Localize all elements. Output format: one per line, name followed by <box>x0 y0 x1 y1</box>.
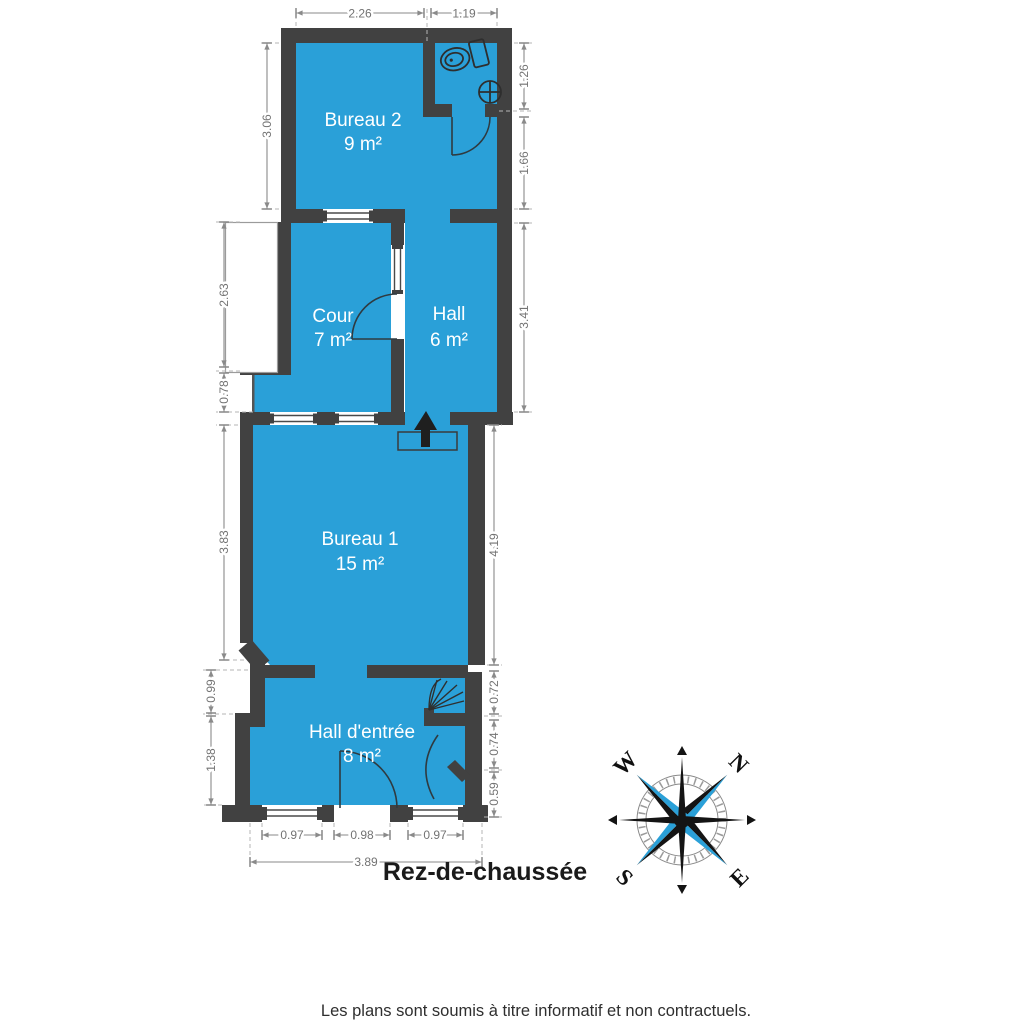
dim-top-bureau2-width: 2.26 <box>348 7 372 21</box>
compass-east-label: E <box>725 863 754 892</box>
dim-top-wc-width: 1.19 <box>452 7 476 21</box>
dim-bottom-entry-door: 0.98 <box>350 828 374 842</box>
sink-icon <box>479 81 501 103</box>
room-area-hall: 6 m² <box>430 330 468 351</box>
room-label-hall: Hall <box>433 304 466 325</box>
room-label-bureau2: Bureau 2 <box>324 110 401 131</box>
dim-right-stair-recess: 0.72 <box>487 680 501 704</box>
compass-south-label: S <box>611 864 638 891</box>
floor-title: Rez-de-chaussée <box>383 858 587 886</box>
room-label-bureau1: Bureau 1 <box>321 529 398 550</box>
room-area-bureau1: 15 m² <box>336 554 385 575</box>
front-door-opening <box>334 805 390 822</box>
lightwell-recess <box>226 223 278 373</box>
dim-left-bureau2-height: 3.06 <box>260 114 274 138</box>
compass-north-label: N <box>724 749 754 779</box>
dim-bottom-window-left: 0.97 <box>280 828 304 842</box>
dim-left-hall-entree-lower: 1.38 <box>204 748 218 772</box>
room-area-bureau2: 9 m² <box>344 134 382 155</box>
dim-right-mid-recess: 0.74 <box>487 732 501 756</box>
dim-bottom-window-right: 0.97 <box>423 828 447 842</box>
floor-plan-drawing: 2.26 1.19 3.06 2.63 0.78 3.83 0.99 1.38 … <box>0 0 1024 1024</box>
room-label-cour: Cour <box>312 306 354 327</box>
room-label-hall-entree: Hall d'entrée <box>309 722 415 743</box>
window-facade-left-icon <box>262 805 322 822</box>
dim-left-cour-lower: 0.78 <box>217 380 231 404</box>
floor-plan-page: 2.26 1.19 3.06 2.63 0.78 3.83 0.99 1.38 … <box>0 0 1024 1024</box>
dim-left-hall-entree-upper: 0.99 <box>204 679 218 703</box>
room-area-cour: 7 m² <box>314 330 352 351</box>
dim-right-corridor-height: 1.66 <box>517 151 531 175</box>
window-bureau2-icon <box>323 209 373 223</box>
window-cour-left-icon <box>270 412 317 425</box>
dim-left-bureau1-height: 3.83 <box>217 530 231 554</box>
dim-right-bureau1-height: 4.19 <box>487 533 501 557</box>
disclaimer-text: Les plans sont soumis à titre informatif… <box>321 1002 751 1020</box>
dim-left-cour-height: 2.63 <box>217 283 231 307</box>
dim-right-wc-height: 1.26 <box>517 64 531 88</box>
window-facade-right-icon <box>408 805 463 822</box>
room-area-hall-entree: 8 m² <box>343 746 381 767</box>
dim-bottom-total-width: 3.89 <box>354 855 378 869</box>
wc-partition-wall <box>423 43 435 117</box>
window-cour-right-icon <box>335 412 378 425</box>
compass-rose-icon: N W S E <box>591 729 772 910</box>
window-divider-icon <box>391 245 404 294</box>
dim-right-lower-recess: 0.59 <box>487 782 501 806</box>
dim-right-hall-height: 3.41 <box>517 305 531 329</box>
